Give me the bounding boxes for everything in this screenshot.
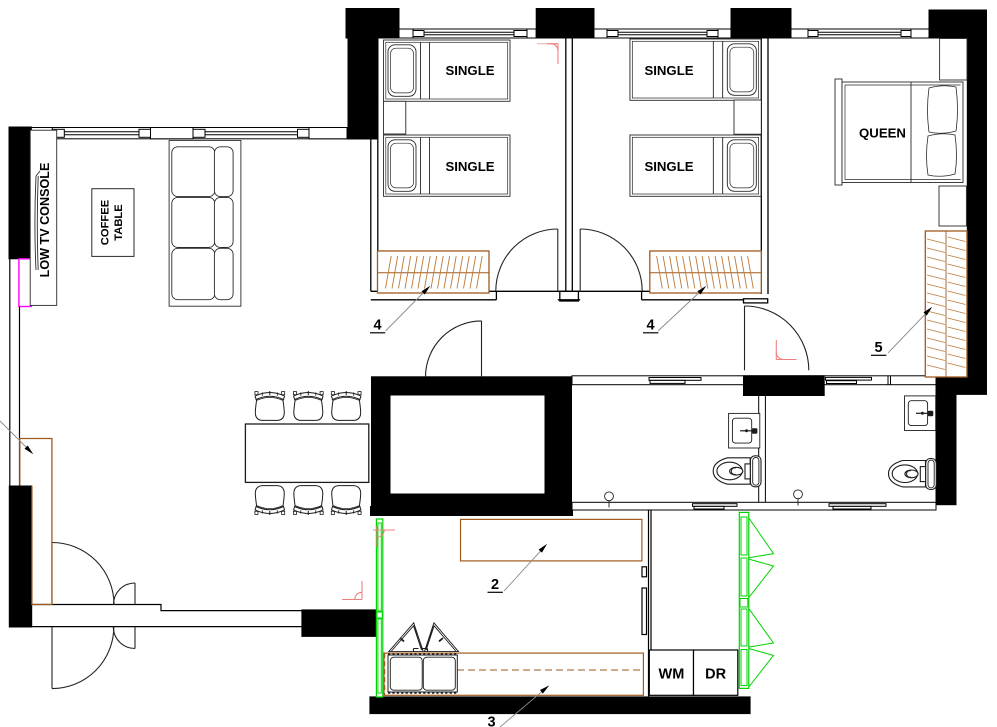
svg-text:3: 3 <box>487 715 495 727</box>
svg-text:DR: DR <box>705 667 726 683</box>
svg-text:SINGLE: SINGLE <box>644 63 693 78</box>
svg-text:SINGLE: SINGLE <box>445 63 494 78</box>
svg-text:5: 5 <box>874 340 882 356</box>
svg-text:WM: WM <box>659 667 685 683</box>
svg-text:SINGLE: SINGLE <box>644 159 693 174</box>
svg-text:2: 2 <box>491 577 499 593</box>
svg-text:LOW TV CONSOLE: LOW TV CONSOLE <box>38 163 52 278</box>
svg-text:QUEEN: QUEEN <box>859 126 906 141</box>
svg-text:4: 4 <box>373 318 381 334</box>
svg-text:COFFEE: COFFEE <box>100 199 112 245</box>
svg-text:4: 4 <box>646 318 654 334</box>
svg-text:SINGLE: SINGLE <box>445 159 494 174</box>
svg-text:TABLE: TABLE <box>113 204 125 241</box>
